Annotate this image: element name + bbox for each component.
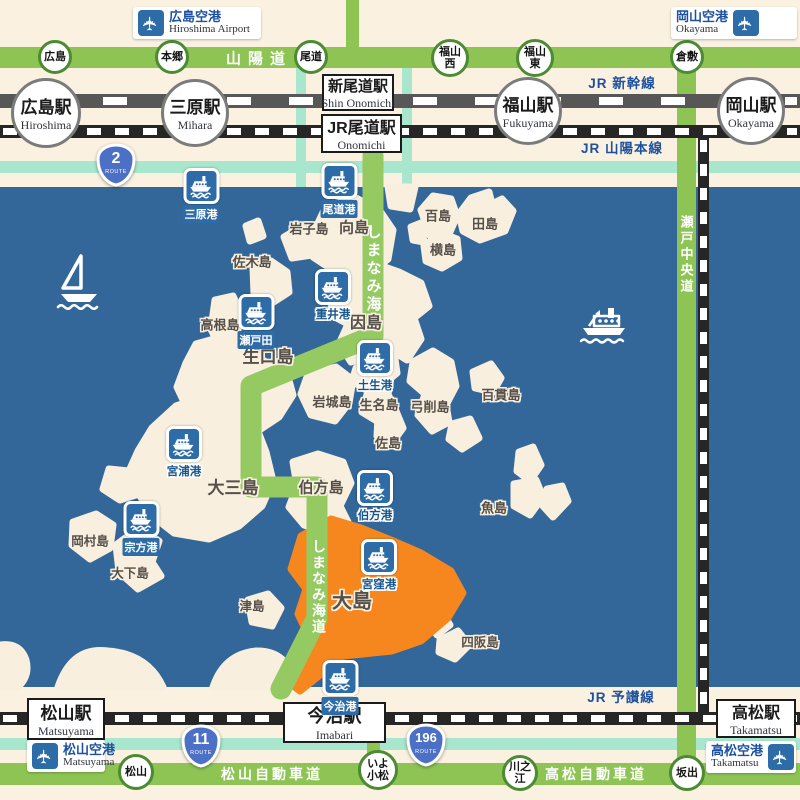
ferry-icon (123, 501, 159, 537)
port-label: 三原港 (183, 205, 220, 223)
ferry-icon (361, 539, 397, 575)
island-label-yugeshima: 弓削島 (410, 397, 449, 416)
island-label-iwashijima: 岩子島 (289, 219, 328, 238)
island-label-sashima: 佐島 (375, 433, 401, 452)
route-number: 2 (96, 150, 136, 168)
route-number: 11 (181, 731, 221, 749)
station-name-en: Matsuyama (38, 724, 94, 739)
airport-matsuyama[interactable]: ✈松山空港Matsuyama (27, 740, 105, 772)
station-takamatsu[interactable]: 高松駅Takamatsu (716, 699, 796, 738)
airport-name-jp: 松山空港 (63, 743, 115, 757)
port-label: 今治港 (322, 697, 359, 715)
port-setoda[interactable]: 瀬戸田 (238, 294, 275, 349)
airplane-icon: ✈ (768, 744, 794, 770)
rail-label-yosan-line: JR 予讃線 (587, 686, 655, 706)
airport-name-jp: 高松空港 (711, 744, 763, 758)
yosan-rail-line (0, 712, 800, 725)
island-yugeshima (410, 351, 456, 431)
station-name-en: Shin Onomichi (322, 96, 395, 111)
island-label-kouneshima: 高根島 (200, 315, 239, 334)
ferry-icon (315, 269, 351, 305)
airport-name-en: Matsuyama (63, 757, 115, 769)
island-label-mukaishima: 向島 (339, 217, 369, 238)
island-label-innoshima: 因島 (350, 309, 382, 333)
road-label-sanyo-expressway: 山陽道 (226, 48, 292, 69)
port-onomichi[interactable]: 尾道港 (321, 163, 358, 218)
station-name-en: Onomichi (338, 138, 386, 153)
station-name-jp: 福山駅 (503, 91, 554, 116)
seto-chuo-expressway-road (677, 47, 696, 770)
island-label-hyakkanjima: 百貫島 (481, 385, 520, 404)
station-shin-onomichi[interactable]: 新尾道駅Shin Onomichi (322, 74, 394, 111)
island-label-uoshima: 魚島 (481, 498, 507, 517)
port-shigei[interactable]: 重井港 (315, 269, 351, 322)
ferry-icon (166, 426, 202, 462)
island-label-okamurajima: 岡村島 (71, 531, 109, 550)
port-mihara[interactable]: 三原港 (183, 168, 220, 223)
island-label-sagishima: 佐木島 (232, 252, 271, 271)
road-label-matsuyama-expressway: 松山自動車道 (221, 764, 323, 784)
station-fukuyama[interactable]: 福山駅Fukuyama (494, 77, 562, 145)
interchange-fukuyama-higashi[interactable]: 福山 東 (516, 39, 554, 77)
airplane-icon: ✈ (138, 10, 164, 36)
interchange-matsuyama[interactable]: 松山 (118, 754, 154, 790)
interchange-fukuyama-nishi[interactable]: 福山 西 (431, 39, 469, 77)
station-name-jp: 岡山駅 (726, 91, 777, 116)
port-label: 伯方港 (358, 507, 393, 523)
island-label-ikinajima: 生名島 (359, 395, 398, 414)
ferry-icon (357, 340, 393, 376)
ferry-icon (183, 168, 219, 204)
port-miyakubo[interactable]: 宮窪港 (361, 539, 397, 592)
island-label-hyakushima: 百島 (425, 206, 451, 225)
island-label-hakatajima: 伯方島 (298, 477, 343, 498)
port-munakata[interactable]: 宗方港 (123, 501, 160, 556)
station-name-en: Mihara (178, 118, 213, 133)
station-name-jp: 三原駅 (170, 93, 221, 118)
interchange-onomichi[interactable]: 尾道 (294, 40, 328, 74)
road-label-takamatsu-expressway: 高松自動車道 (545, 764, 647, 784)
coast (0, 645, 27, 687)
islet (449, 419, 479, 449)
airport-hiroshima[interactable]: ✈広島空港Hiroshima Airport (133, 7, 261, 39)
port-habu[interactable]: 土生港 (357, 340, 393, 393)
islet (388, 187, 415, 209)
ferry-icon (238, 294, 274, 330)
interchange-iyo-komatsu[interactable]: いよ 小松 (358, 750, 398, 790)
airport-name-en: Okayama (676, 24, 728, 36)
ferry-icon (357, 470, 393, 506)
airport-okayama[interactable]: 岡山空港Okayama✈ (671, 7, 797, 39)
interchange-hiroshima[interactable]: 広島 (38, 40, 72, 74)
route-word: ROUTE (96, 169, 136, 175)
island-label-tsushima: 津島 (239, 596, 264, 615)
islet (246, 221, 263, 241)
station-name-jp: 松山駅 (41, 699, 92, 724)
port-label: 宗方港 (123, 538, 160, 556)
road-label-shimanami-kaido-south: しまなみ海道 (309, 539, 329, 635)
airport-name-en: Takamatsu (711, 758, 763, 770)
station-name-en: Hiroshima (21, 118, 72, 133)
port-hakata[interactable]: 伯方港 (357, 470, 393, 523)
route-word: ROUTE (406, 749, 446, 755)
airplane-icon: ✈ (733, 10, 759, 36)
island-label-yokoshima: 横島 (430, 240, 456, 259)
station-name-en: Fukuyama (503, 116, 554, 131)
interchange-hongo[interactable]: 本郷 (155, 40, 189, 74)
route-badge-11: 11ROUTE (181, 724, 221, 768)
islet (517, 447, 541, 481)
interchange-sakaide[interactable]: 坂出 (669, 755, 705, 791)
airport-name-jp: 岡山空港 (676, 10, 728, 24)
airport-name-en: Hiroshima Airport (169, 24, 250, 36)
port-imabari[interactable]: 今治港 (322, 660, 359, 715)
station-hiroshima[interactable]: 広島駅Hiroshima (11, 78, 81, 148)
seto-ohashi-rail-line (698, 138, 709, 714)
port-label: 瀬戸田 (238, 331, 275, 349)
station-matsuyama[interactable]: 松山駅Matsuyama (27, 698, 105, 740)
route-badge-2: 2ROUTE (96, 143, 136, 187)
island-label-shisakajima: 四阪島 (461, 632, 499, 651)
station-name-en: Okayama (728, 116, 774, 131)
ferry-icon (321, 163, 357, 199)
station-name-jp: 新尾道駅 (328, 75, 388, 96)
rail-label-sanyo-main-line: JR 山陽本線 (581, 137, 663, 157)
route-badge-196: 196ROUTE (406, 723, 446, 767)
airport-takamatsu[interactable]: 高松空港Takamatsu✈ (706, 741, 796, 773)
station-okayama[interactable]: 岡山駅Okayama (717, 77, 785, 145)
island-label-omishima: 大三島 (208, 474, 259, 499)
shinkansen-rail-line (0, 94, 800, 108)
road-label-seto-chuo-expressway: 瀬戸中央道 (677, 215, 696, 295)
airplane-icon: ✈ (32, 743, 58, 769)
port-label: 宮浦港 (167, 463, 202, 479)
ferry-icon (322, 660, 358, 696)
island-label-tashima: 田島 (472, 214, 498, 233)
port-label: 重井港 (316, 306, 351, 322)
islet (411, 223, 424, 242)
station-jr-onomichi[interactable]: JR尾道駅Onomichi (321, 114, 402, 153)
shimanami-access-map: 山陽道松山自動車道高松自動車道瀬戸中央道しまなみ海道しまなみ海道JR 新幹線JR… (0, 0, 800, 800)
route-number: 196 (406, 730, 446, 745)
rail-label-shinkansen: JR 新幹線 (588, 72, 656, 92)
island-label-ogejima: 大下島 (111, 563, 149, 582)
station-name-jp: JR尾道駅 (327, 114, 395, 138)
port-miyaura[interactable]: 宮浦港 (166, 426, 202, 479)
station-name-en: Takamatsu (730, 723, 782, 738)
route-word: ROUTE (181, 750, 221, 756)
port-label: 土生港 (358, 377, 393, 393)
interchange-kurashiki[interactable]: 倉敷 (670, 40, 704, 74)
station-mihara[interactable]: 三原駅Mihara (161, 79, 229, 147)
port-label: 宮窪港 (362, 576, 397, 592)
interchange-kawanoe[interactable]: 川之江 (502, 755, 538, 791)
airport-name-jp: 広島空港 (169, 10, 250, 24)
island-label-iwagijima: 岩城島 (312, 392, 351, 411)
station-name-en: Imabari (316, 728, 353, 743)
port-label: 尾道港 (321, 200, 358, 218)
station-name-jp: 高松駅 (732, 699, 780, 723)
station-name-jp: 広島駅 (21, 93, 72, 118)
